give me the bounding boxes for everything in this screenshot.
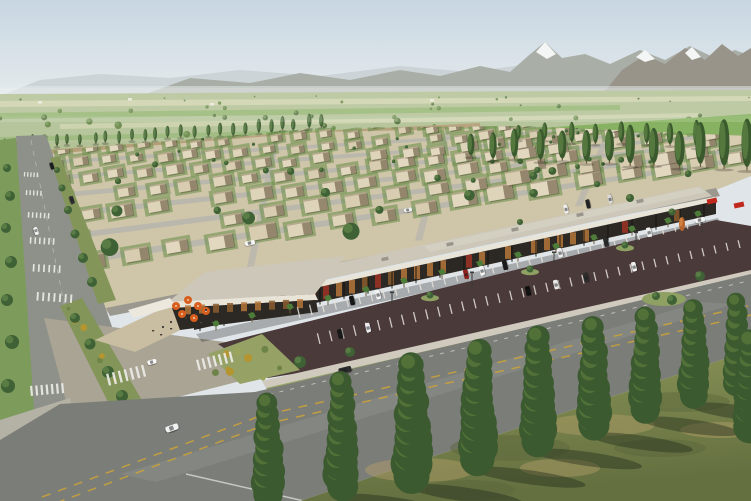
roundabout (642, 292, 686, 306)
aerial-render (0, 0, 751, 501)
scene-canvas (0, 0, 751, 501)
accent-tree-orange (679, 217, 685, 231)
roundabout-island (642, 292, 686, 306)
orange-tree-highlight (679, 218, 683, 227)
